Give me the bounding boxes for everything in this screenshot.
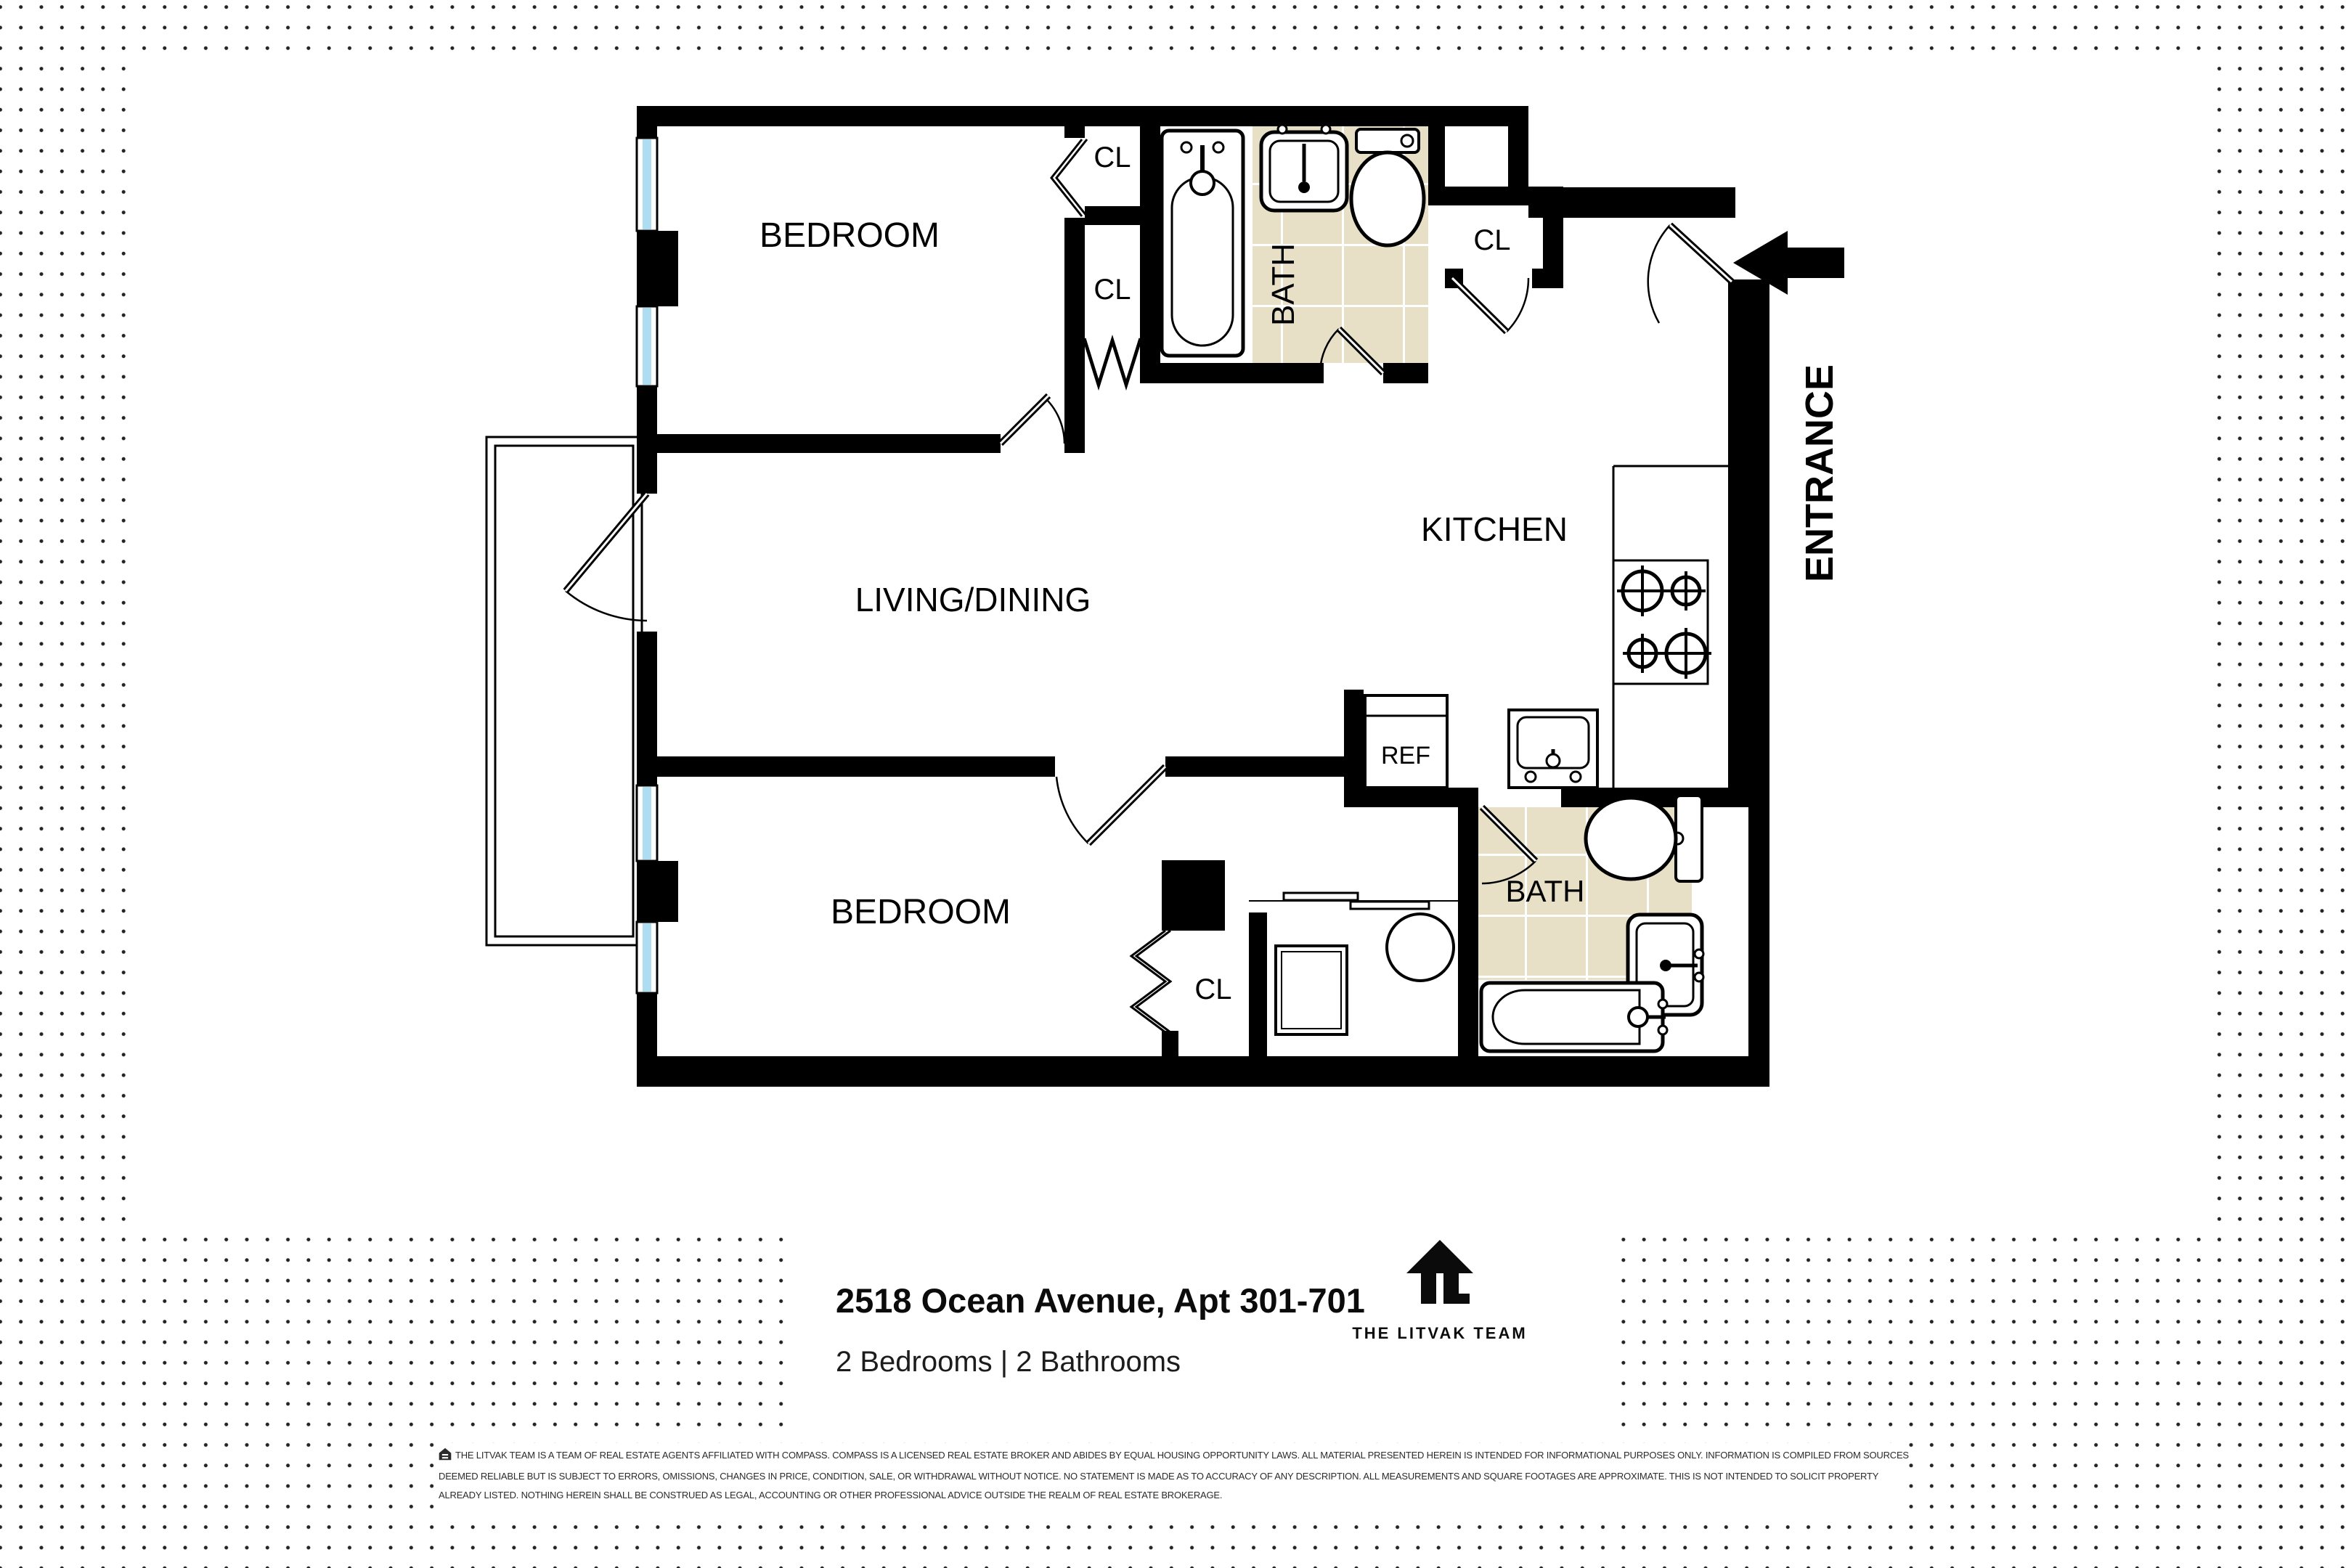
label-bedroom-upper: BEDROOM [759,216,940,255]
bifold-closet-lower [1131,931,1170,1032]
window [637,306,657,386]
door-bedroom-upper [1001,396,1064,444]
sliding-door-utility [1249,893,1458,909]
laundry-basin-icon [1387,914,1454,981]
door-entrance [1648,225,1732,323]
toilet-icon [1586,796,1702,881]
brand-name: THE LITVAK TEAM [1349,1324,1531,1343]
page-title: 2518 Ocean Avenue, Apt 301-701 [836,1283,1365,1318]
kitchen-sink-icon [1509,710,1597,788]
disclaimer-line: DEEMED RELIABLE BUT IS SUBJECT TO ERRORS… [439,1467,1898,1486]
equal-housing-icon [439,1447,452,1467]
bifold-closet-upper [1051,139,1087,216]
disclaimer: THE LITVAK TEAM IS A TEAM OF REAL ESTATE… [434,1443,1902,1509]
toilet-icon [1351,129,1424,245]
window [637,785,657,861]
label-entrance: ENTRANCE [1798,364,1841,582]
utility-fixtures [1276,914,1454,1034]
label-closet-3: CL [1473,224,1510,256]
balcony [486,437,642,945]
label-bath-upper: BATH [1266,243,1301,326]
label-living-dining: LIVING/DINING [855,581,1091,618]
sink-icon [1261,125,1347,211]
door-closet-right [1452,278,1528,332]
disclaimer-line: ALREADY LISTED. NOTHING HEREIN SHALL BE … [439,1486,1898,1505]
label-fridge: REF [1381,742,1430,769]
bathtub-icon [1481,983,1667,1051]
bed-bath-summary: 2 Bedrooms | 2 Bathrooms [836,1347,1181,1376]
label-closet-2: CL [1093,274,1131,306]
washer-icon [1276,946,1347,1034]
bathtub-icon [1162,131,1243,356]
label-closet-4: CL [1194,973,1231,1005]
disclaimer-text-1: THE LITVAK TEAM IS A TEAM OF REAL ESTATE… [455,1450,1909,1461]
window [637,922,657,993]
label-bedroom-lower: BEDROOM [831,893,1011,931]
window [637,138,657,231]
floorplan-drawing: BEDROOM BEDROOM LIVING/DINING KITCHEN CL… [0,0,2346,1568]
disclaimer-text-3: ALREADY LISTED. NOTHING HEREIN SHALL BE … [439,1490,1222,1500]
label-closet-1: CL [1093,142,1131,173]
bifold-closet-mid [1085,338,1140,387]
floorplan-page: BEDROOM BEDROOM LIVING/DINING KITCHEN CL… [0,0,2346,1568]
litvak-team-logo-icon [1404,1238,1476,1307]
label-kitchen: KITCHEN [1421,510,1568,548]
door-bedroom-lower [1056,767,1165,844]
label-bath-lower: BATH [1506,874,1585,908]
disclaimer-line: THE LITVAK TEAM IS A TEAM OF REAL ESTATE… [439,1446,1898,1467]
stove-icon [1613,560,1711,684]
disclaimer-text-2: DEEMED RELIABLE BUT IS SUBJECT TO ERRORS… [439,1471,1878,1482]
